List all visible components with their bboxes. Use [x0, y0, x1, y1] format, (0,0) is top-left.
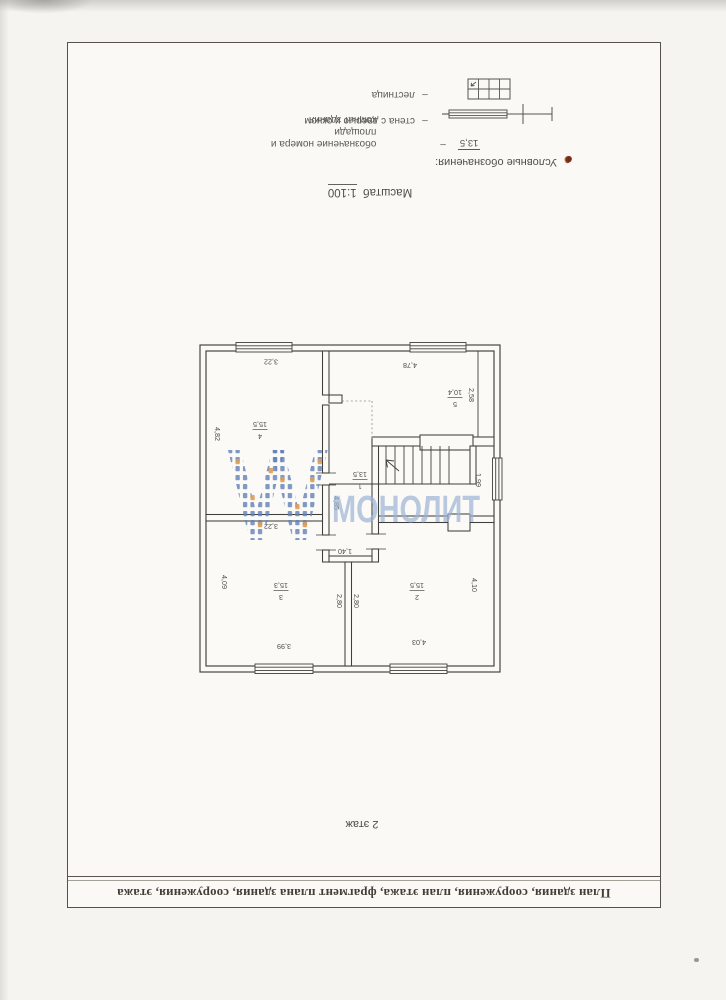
legend-item-text: стена с дверью и окном — [304, 114, 415, 126]
svg-text:1: 1 — [358, 482, 362, 491]
legend-item-text: лестница — [372, 88, 415, 100]
svg-text:4: 4 — [258, 432, 262, 441]
svg-text:13,5: 13,5 — [353, 470, 367, 479]
dim-r4-left: 4,82 — [213, 427, 222, 441]
svg-text:15,3: 15,3 — [274, 581, 288, 590]
dim-r4-top: 3,22 — [264, 358, 278, 367]
floor-label: 2 этаж — [327, 818, 397, 830]
legend-item-stairs: – лестница — [245, 76, 575, 100]
wall-door-window-icon — [441, 104, 553, 126]
legend-item-room-label: 13,5 – обозначение номера и площади комн… — [245, 126, 575, 150]
legend-dash: – — [434, 139, 451, 150]
legend-items: 13,5 – обозначение номера и площади комн… — [245, 76, 575, 150]
svg-text:15,5: 15,5 — [410, 581, 424, 590]
dim-hall-left: 4,85 — [332, 496, 341, 510]
floor-plan: 3,22 4,78 2,58 4,82 4,85 1,99 3,22 1,40 … — [190, 338, 510, 683]
scan-speck — [694, 958, 699, 962]
red-mark-icon — [563, 155, 573, 164]
scanned-document-page: План здания, сооружения, план этажа, фра… — [0, 0, 726, 1000]
dim-r3-bottom: 3,99 — [277, 642, 291, 651]
legend-title: Условные обозначения: — [435, 156, 557, 168]
legend-item-wall: – стена с дверью и окном — [245, 100, 575, 126]
legend-dash: – — [415, 115, 435, 126]
dim-corridor: 1,40 — [338, 547, 352, 556]
scale-value: 1:100 — [328, 184, 357, 198]
legend-dash: – — [415, 89, 435, 100]
room-label-symbol: 13,5 — [458, 137, 481, 150]
svg-text:2: 2 — [415, 593, 419, 602]
dim-r2-right: 4,10 — [470, 578, 479, 592]
svg-text:5: 5 — [453, 400, 457, 409]
document-title: План здания, сооружения, план этажа, фра… — [117, 885, 610, 900]
notes-area: Масштаб 1:100 Условные обозначения: 13,5… — [245, 66, 575, 200]
dim-r2-bottom: 4,03 — [412, 638, 426, 647]
dim-r5-top: 4,78 — [403, 361, 417, 370]
dim-center-left: 2,80 — [335, 594, 344, 608]
title-block: План здания, сооружения, план этажа, фра… — [68, 876, 660, 907]
stairs-icon — [467, 78, 511, 100]
svg-text:3: 3 — [279, 593, 283, 602]
dim-r3-top: 3,22 — [264, 522, 278, 531]
dim-center-right: 2,80 — [352, 594, 361, 608]
dim-r5-right: 2,58 — [467, 388, 476, 402]
svg-text:15,5: 15,5 — [253, 420, 267, 429]
scale-prefix: Масштаб — [363, 186, 412, 198]
svg-text:10,4: 10,4 — [448, 388, 462, 397]
dim-stair-window: 1,99 — [474, 473, 483, 487]
scale-label: Масштаб 1:100 — [270, 186, 470, 198]
dim-r3-left: 4,09 — [220, 575, 229, 589]
